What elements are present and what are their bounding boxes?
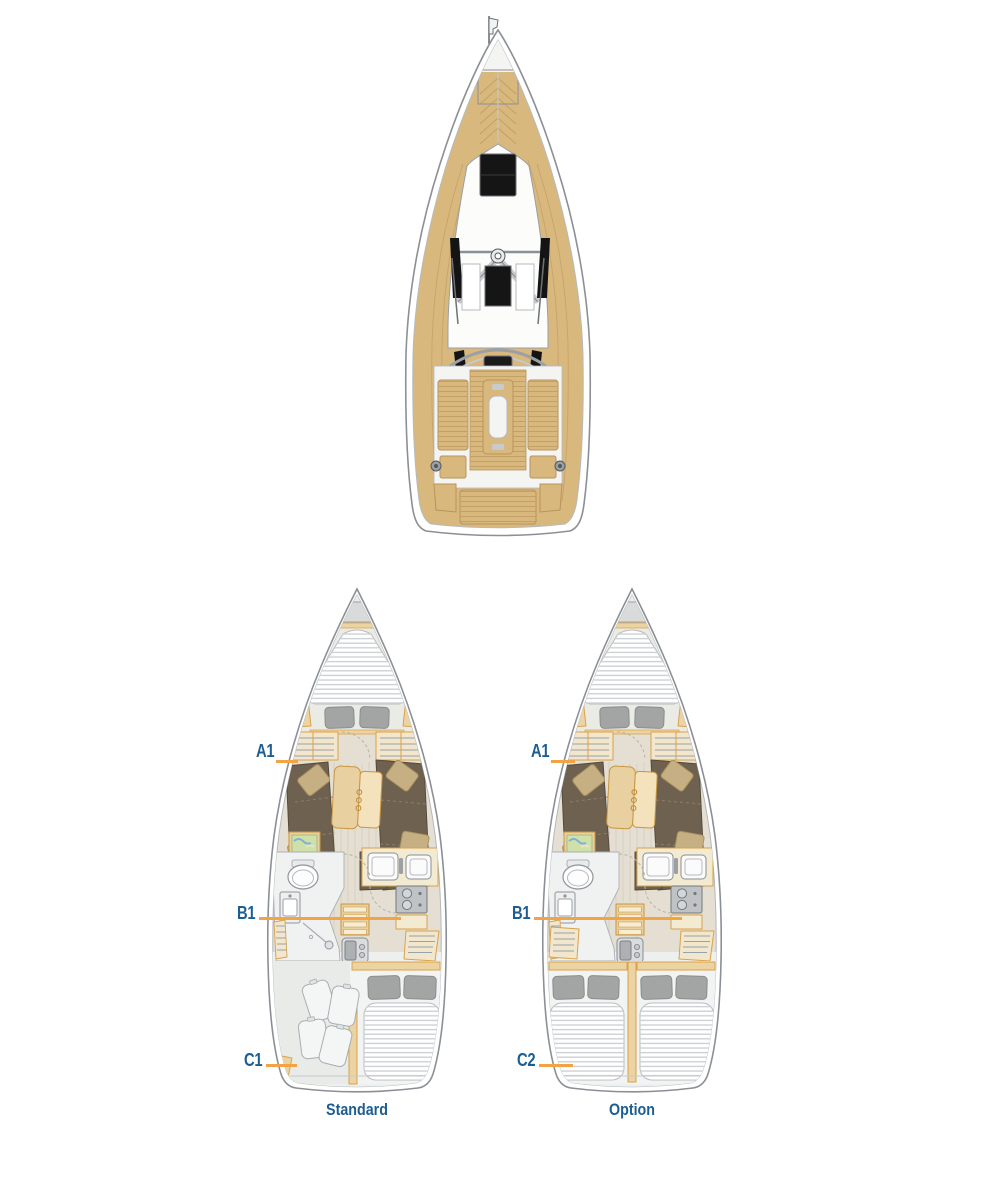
leader-option-b1: [534, 917, 682, 920]
aft-pillow: [641, 975, 673, 999]
aft-pillow: [368, 975, 401, 999]
shower-head: [325, 941, 333, 949]
helm-seat-right: [530, 456, 556, 478]
caption-option: Option: [547, 1100, 717, 1120]
helm-seat-left: [440, 456, 466, 478]
aft-pillow: [553, 975, 585, 999]
leader-option-a1: [551, 760, 575, 763]
label-standard-a1: A1: [256, 742, 274, 760]
leader-standard-a1: [276, 760, 298, 763]
leader-option-c2: [539, 1064, 573, 1067]
label-standard-c1: C1: [244, 1051, 262, 1069]
yacht-layout-sheet: A1 B1 C1 A1 B1 C2 Standard Option: [0, 0, 996, 1177]
aft-pillow: [588, 975, 620, 999]
interior-plan-standard: [256, 586, 458, 1094]
leader-standard-c1: [266, 1064, 297, 1067]
label-option-b1: B1: [512, 904, 530, 922]
leader-standard-b1: [259, 917, 401, 920]
label-option-a1: A1: [531, 742, 549, 760]
label-option-c2: C2: [517, 1051, 535, 1069]
aft-teak-right: [540, 484, 562, 512]
label-standard-b1: B1: [237, 904, 255, 922]
aft-pillow: [676, 975, 708, 999]
aft-pillow: [404, 975, 437, 999]
interior-plan-option: [531, 586, 733, 1094]
port-louver-locker: [549, 927, 579, 959]
aft-teak-left: [434, 484, 456, 512]
deck-plan: [400, 14, 600, 538]
saloon-hatch: [485, 266, 511, 306]
caption-standard: Standard: [272, 1100, 442, 1120]
